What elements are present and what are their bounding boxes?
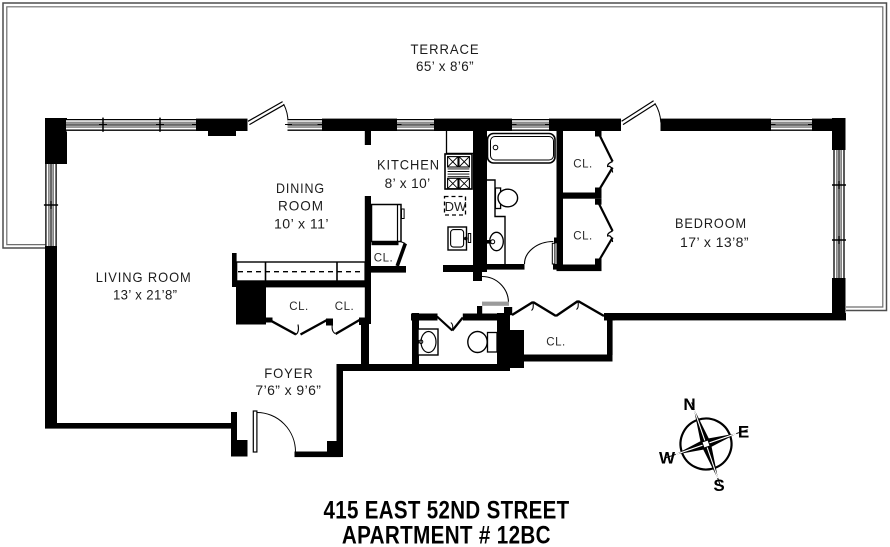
svg-text:S: S [713, 476, 724, 495]
svg-text:CL.: CL. [289, 301, 308, 313]
svg-text:ROOM: ROOM [278, 198, 324, 214]
svg-text:65’ x 8’6”: 65’ x 8’6” [416, 59, 474, 74]
svg-text:8’ x 10’: 8’ x 10’ [385, 176, 431, 191]
svg-text:CL.: CL. [546, 337, 565, 349]
svg-text:CL.: CL. [335, 301, 354, 313]
svg-text:DW: DW [445, 199, 467, 214]
svg-text:13’ x 21’8”: 13’ x 21’8” [113, 287, 178, 302]
svg-text:CL.: CL. [573, 159, 592, 171]
svg-text:KITCHEN: KITCHEN [377, 157, 440, 173]
svg-text:CL.: CL. [374, 253, 393, 265]
svg-text:BEDROOM: BEDROOM [675, 215, 747, 231]
svg-text:DINING: DINING [276, 180, 325, 196]
svg-text:E: E [738, 423, 749, 442]
svg-text:N: N [683, 395, 695, 414]
svg-text:415 EAST 52ND STREET: 415 EAST 52ND STREET [324, 497, 570, 525]
svg-text:FOYER: FOYER [264, 365, 314, 381]
svg-text:CL.: CL. [573, 231, 592, 243]
svg-text:TERRACE: TERRACE [411, 41, 480, 57]
svg-text:10’ x 11’: 10’ x 11’ [274, 217, 329, 232]
svg-text:7’6” x 9’6”: 7’6” x 9’6” [255, 383, 321, 398]
svg-text:LIVING ROOM: LIVING ROOM [96, 269, 192, 285]
svg-text:17’ x 13’8”: 17’ x 13’8” [680, 235, 749, 250]
svg-text:APARTMENT # 12BC: APARTMENT # 12BC [342, 522, 551, 547]
svg-text:W: W [659, 449, 676, 468]
